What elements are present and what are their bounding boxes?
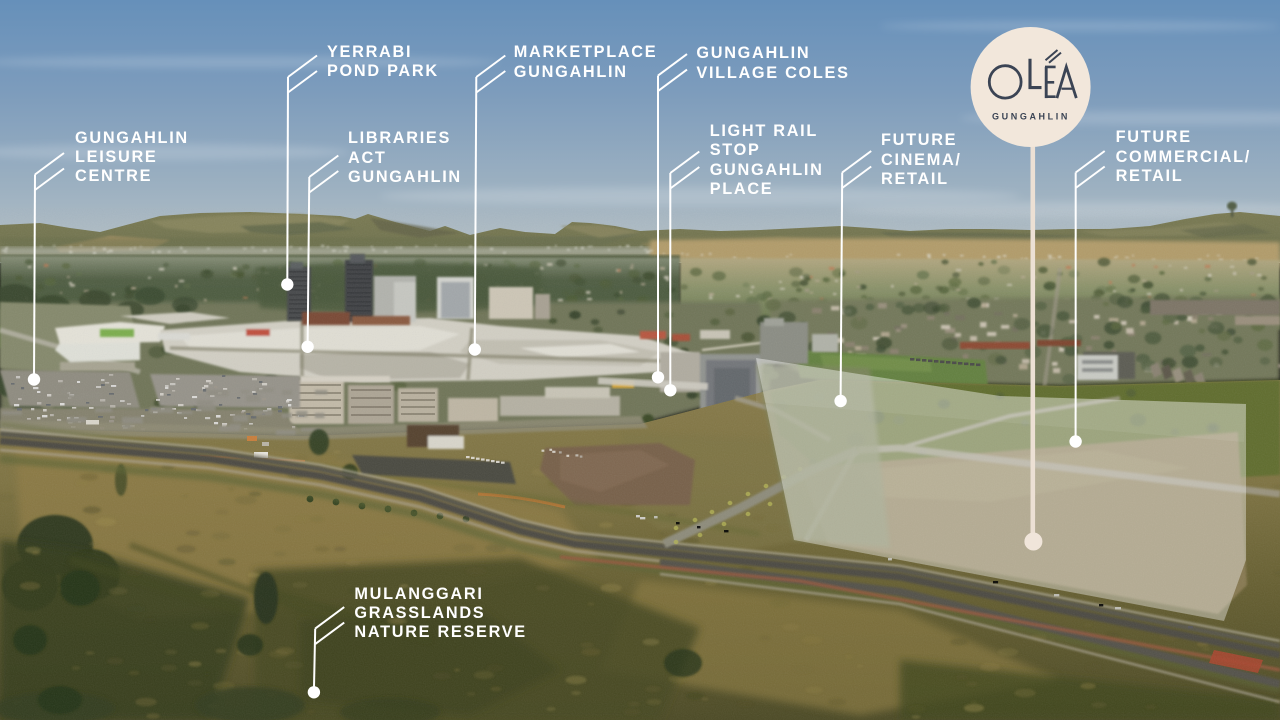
svg-text:GUNGAHLIN: GUNGAHLIN	[992, 112, 1070, 122]
